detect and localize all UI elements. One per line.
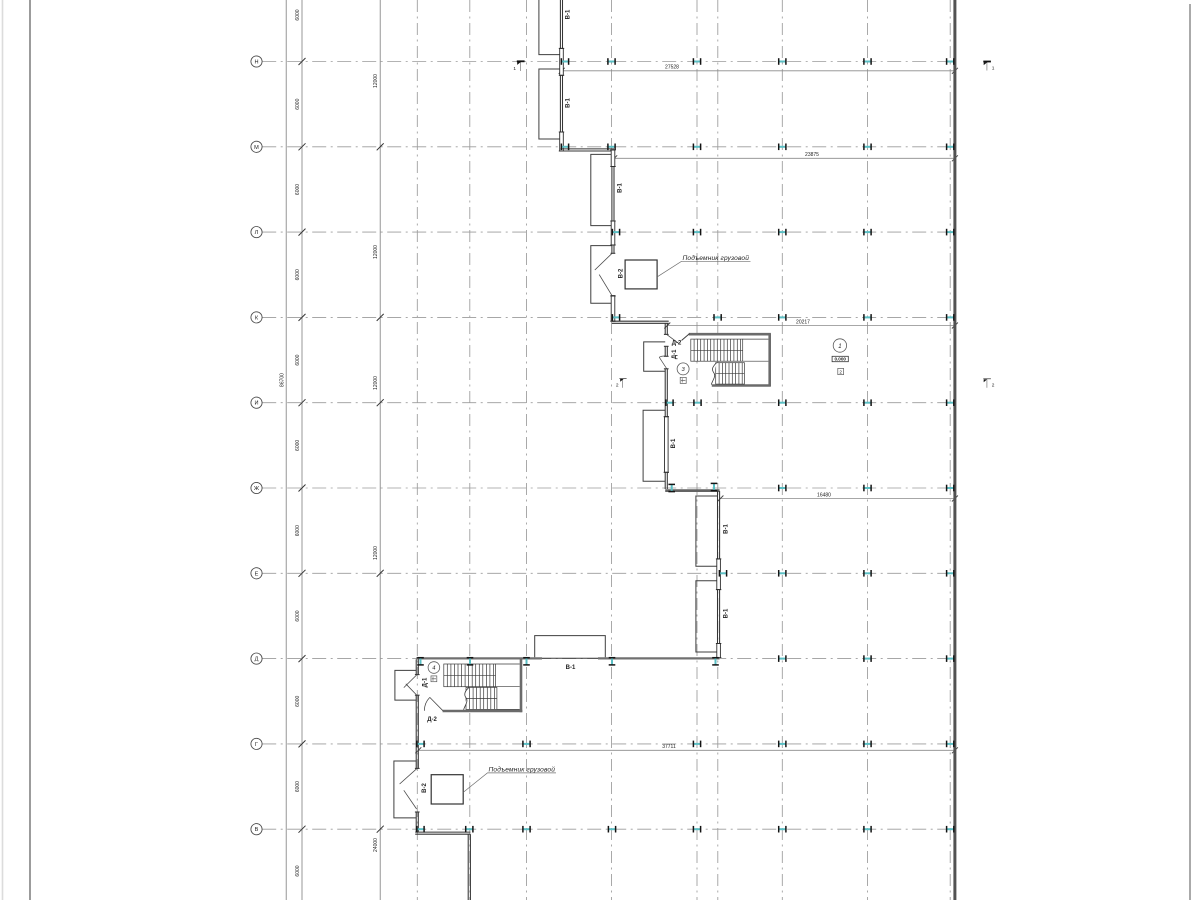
svg-text:6000: 6000 <box>295 865 301 876</box>
svg-text:16480: 16480 <box>817 492 831 498</box>
svg-text:Д: Д <box>255 657 259 663</box>
svg-text:6000: 6000 <box>295 610 301 621</box>
svg-text:4: 4 <box>432 666 435 672</box>
svg-text:Е: Е <box>255 571 259 577</box>
svg-text:20217: 20217 <box>796 319 810 325</box>
svg-text:6000: 6000 <box>295 525 301 536</box>
svg-text:Д-2: Д-2 <box>672 340 682 346</box>
svg-text:Д-1: Д-1 <box>672 349 678 359</box>
svg-text:В-1: В-1 <box>617 183 623 193</box>
svg-text:27528: 27528 <box>665 65 679 71</box>
svg-text:Г: Г <box>255 742 258 748</box>
svg-text:В-2: В-2 <box>618 268 624 278</box>
svg-text:6000: 6000 <box>295 781 301 792</box>
svg-text:В: В <box>255 827 259 833</box>
svg-text:24000: 24000 <box>373 838 379 852</box>
svg-text:12000: 12000 <box>373 245 379 259</box>
svg-text:В-1: В-1 <box>671 438 677 448</box>
svg-text:В-1: В-1 <box>724 524 730 534</box>
svg-text:В-2: В-2 <box>422 783 428 793</box>
svg-text:Подъемник грузовой: Подъемник грузовой <box>683 254 750 262</box>
svg-text:Д-1: Д-1 <box>422 677 428 687</box>
svg-text:Д-2: Д-2 <box>427 717 437 723</box>
svg-text:В-1: В-1 <box>724 608 730 618</box>
svg-text:0.000: 0.000 <box>834 357 846 362</box>
svg-text:В-1: В-1 <box>565 9 571 19</box>
svg-text:6000: 6000 <box>295 269 301 280</box>
svg-text:6000: 6000 <box>295 9 301 20</box>
svg-text:2: 2 <box>616 383 619 389</box>
svg-text:37711: 37711 <box>662 744 676 750</box>
svg-text:Ж: Ж <box>254 486 260 492</box>
svg-text:86700: 86700 <box>280 373 286 387</box>
svg-text:М: М <box>254 145 259 151</box>
svg-text:В-1: В-1 <box>566 665 576 671</box>
svg-text:Подъемник грузовой: Подъемник грузовой <box>489 765 556 773</box>
svg-text:6000: 6000 <box>295 354 301 365</box>
svg-text:Н: Н <box>254 60 258 66</box>
svg-text:6000: 6000 <box>295 696 301 707</box>
svg-text:1: 1 <box>992 65 995 71</box>
svg-text:6000: 6000 <box>295 440 301 451</box>
svg-text:6000: 6000 <box>295 98 301 109</box>
svg-text:12000: 12000 <box>373 376 379 390</box>
svg-text:2: 2 <box>839 370 842 375</box>
svg-text:12000: 12000 <box>373 546 379 560</box>
svg-text:1: 1 <box>838 344 841 350</box>
svg-text:1: 1 <box>513 66 516 72</box>
svg-text:6000: 6000 <box>295 184 301 195</box>
svg-text:И: И <box>254 401 258 407</box>
svg-text:23875: 23875 <box>805 152 819 158</box>
svg-text:2: 2 <box>992 383 995 389</box>
svg-text:Л: Л <box>255 230 259 236</box>
svg-text:12000: 12000 <box>373 74 379 88</box>
svg-text:В-1: В-1 <box>565 98 571 108</box>
